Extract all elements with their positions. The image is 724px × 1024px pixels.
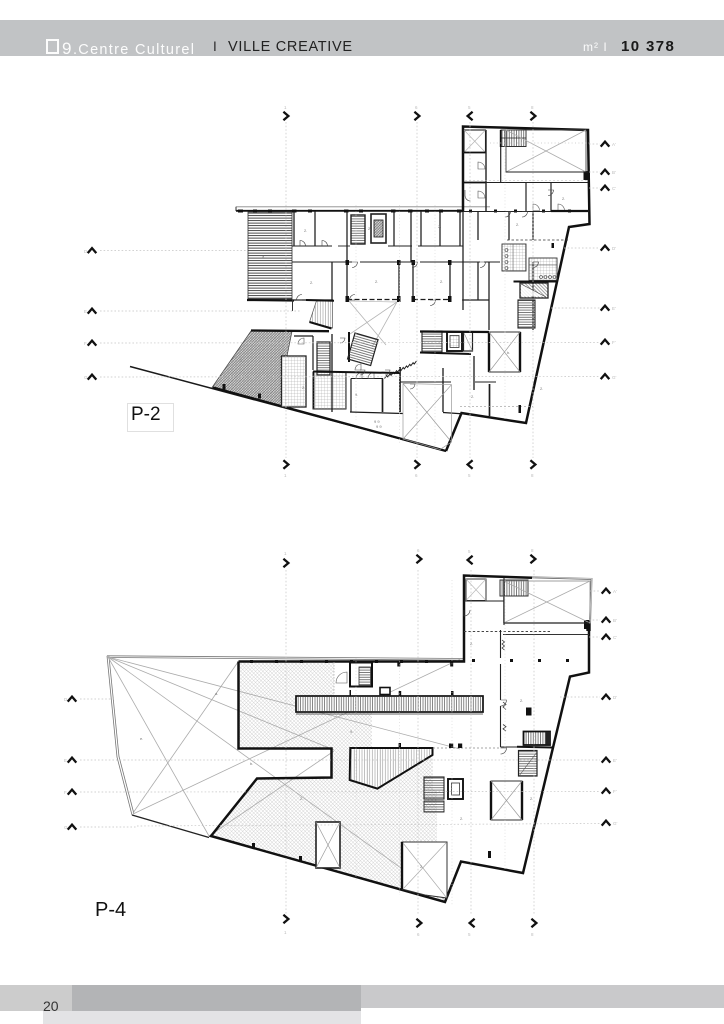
svg-text:F: F	[64, 790, 67, 795]
svg-text:C': C'	[613, 635, 617, 640]
svg-text:G: G	[84, 375, 88, 380]
svg-text:G': G'	[613, 821, 618, 826]
svg-text:2.: 2.	[310, 280, 313, 285]
svg-text:G: G	[64, 825, 68, 830]
svg-text:b.: b.	[250, 761, 253, 766]
svg-text:5: 5	[468, 932, 471, 937]
svg-text:2.: 2.	[530, 796, 533, 801]
svg-text:F: F	[84, 341, 87, 346]
svg-text:2.: 2.	[440, 279, 443, 284]
svg-text:a.: a.	[215, 691, 218, 696]
svg-text:9 9: 9 9	[376, 424, 382, 429]
svg-text:E': E'	[613, 758, 617, 763]
svg-text:6: 6	[417, 548, 420, 553]
svg-text:D': D'	[612, 246, 616, 251]
svg-text:a.: a.	[262, 254, 265, 259]
svg-text:B': B'	[613, 618, 617, 623]
svg-text:1: 1	[284, 551, 287, 556]
svg-text:8: 8	[531, 932, 534, 937]
svg-text:6: 6	[415, 473, 418, 478]
svg-text:2.: 2.	[520, 698, 523, 703]
svg-text:E': E'	[612, 306, 616, 311]
svg-text:2.: 2.	[471, 394, 474, 399]
svg-text:2.: 2.	[302, 385, 305, 390]
svg-text:E: E	[84, 309, 87, 314]
svg-text:2.: 2.	[540, 386, 543, 391]
svg-text:F': F'	[612, 340, 616, 345]
svg-text:2.: 2.	[420, 864, 423, 869]
svg-text:F': F'	[613, 789, 617, 794]
svg-text:B': B'	[612, 170, 616, 175]
svg-text:6: 6	[415, 105, 418, 110]
svg-text:b.: b.	[507, 350, 510, 355]
svg-text:8: 8	[531, 473, 534, 478]
svg-text:2.: 2.	[240, 358, 243, 363]
svg-text:2.: 2.	[460, 816, 463, 821]
svg-text:E: E	[64, 758, 67, 763]
svg-text:2.: 2.	[470, 641, 473, 646]
svg-text:1: 1	[284, 105, 287, 110]
svg-text:A': A'	[613, 589, 617, 594]
svg-text:9.: 9.	[350, 729, 353, 734]
svg-text:1: 1	[284, 930, 287, 935]
svg-text:2.: 2.	[516, 222, 519, 227]
svg-text:e.: e.	[140, 736, 143, 741]
svg-text:8: 8	[531, 548, 534, 553]
svg-text:D: D	[84, 249, 88, 254]
svg-text:8: 8	[531, 105, 534, 110]
svg-text:5: 5	[468, 105, 471, 110]
svg-text:2.: 2.	[375, 279, 378, 284]
svg-text:5: 5	[468, 473, 471, 478]
svg-text:2.: 2.	[562, 196, 565, 201]
svg-text:2.: 2.	[300, 796, 303, 801]
svg-text:2.: 2.	[304, 228, 307, 233]
svg-text:9.: 9.	[355, 392, 358, 397]
svg-text:5: 5	[468, 549, 471, 554]
svg-text:A': A'	[612, 142, 616, 147]
svg-text:2.: 2.	[438, 224, 441, 229]
svg-text:G': G'	[612, 375, 617, 380]
svg-text:2.: 2.	[368, 226, 371, 231]
svg-text:C': C'	[612, 186, 616, 191]
svg-text:6: 6	[417, 932, 420, 937]
svg-text:D': D'	[613, 695, 617, 700]
svg-text:1: 1	[284, 473, 287, 478]
